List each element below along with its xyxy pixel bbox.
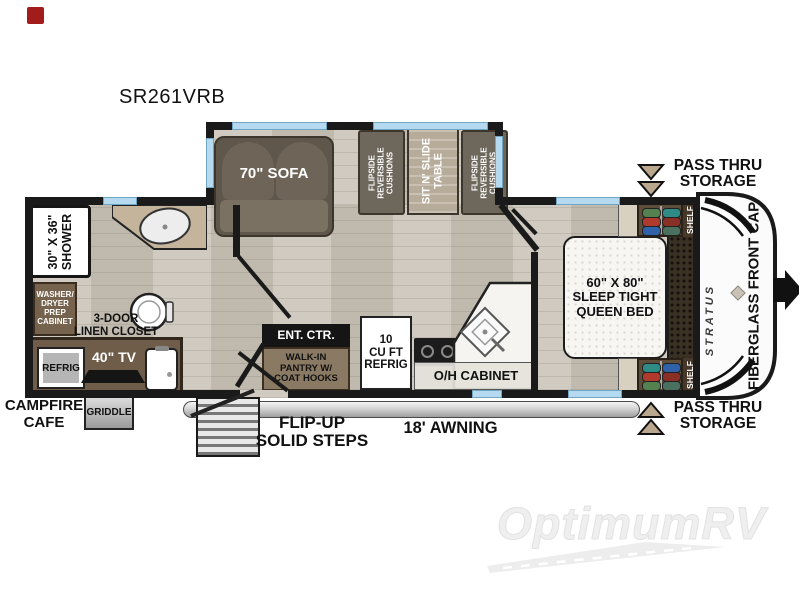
- window: [495, 136, 503, 188]
- down-arrows-icon: [636, 162, 666, 200]
- window: [206, 138, 214, 188]
- wall-bathroom: [233, 205, 240, 257]
- griddle-label: GRIDDLE: [87, 407, 132, 418]
- entertainment-center: ENT. CTR.: [262, 324, 350, 347]
- pass-thru-storage-bottom-label: PASS THRU STORAGE: [664, 400, 772, 433]
- overhead-cabinet: O/H CABINET: [414, 362, 538, 390]
- griddle: GRIDDLE: [84, 394, 134, 430]
- watermark-road-icon: [485, 541, 735, 581]
- shower-label: 30" X 36" SHOWER: [46, 213, 74, 269]
- pass-thru-storage-top-label: PASS THRU STORAGE: [664, 158, 772, 191]
- walk-in-pantry-label: WALK-IN PANTRY W/ COAT HOOKS: [274, 353, 338, 384]
- entertainment-center-label: ENT. CTR.: [277, 329, 334, 342]
- awning-label: 18' AWNING: [393, 419, 508, 437]
- red-marker: [27, 7, 44, 24]
- drain-icon: [167, 372, 172, 377]
- small-refrigerator: REFRIG: [37, 347, 85, 389]
- front-cap-label: FIBERGLASS FRONT CAP: [747, 201, 764, 389]
- wall-rear: [25, 197, 33, 398]
- front-cap-label-wrap: FIBERGLASS FRONT CAP: [742, 193, 768, 398]
- nightstand: [618, 358, 638, 392]
- faucet-icon: [155, 346, 169, 351]
- refrigerator-10cuft: 10 CU FT REFRIG: [360, 316, 412, 390]
- dinette-cushions-right-label: FLIPSIDE REVERSIBLE CUSHIONS: [471, 147, 498, 198]
- tv-label: 40" TV: [87, 350, 141, 365]
- washer-dryer-label: WASHER/ DRYER PREP CABINET: [36, 291, 73, 326]
- dinette-cushions-left-label: FLIPSIDE REVERSIBLE CUSHIONS: [368, 147, 395, 198]
- window: [103, 197, 137, 205]
- window: [568, 390, 622, 398]
- front-cap-brand-label: STRATUS: [704, 284, 716, 356]
- window: [556, 197, 620, 205]
- wardrobe-top: [637, 203, 683, 237]
- small-refrigerator-label: REFRIG: [42, 363, 80, 374]
- shower: 30" X 36" SHOWER: [28, 205, 91, 278]
- steps-label: FLIP-UP SOLID STEPS: [248, 414, 376, 451]
- queen-bed-label: 60" X 80" SLEEP TIGHT QUEEN BED: [573, 276, 658, 319]
- floorplan-page: { "header": { "model": "SR261VRB" }, "li…: [0, 0, 800, 600]
- cafe-sink: [145, 348, 178, 391]
- page-title: SR261VRB: [119, 86, 225, 109]
- overhead-cabinet-label: O/H CABINET: [434, 369, 519, 383]
- campfire-cafe-label: CAMPFIRE CAFE: [0, 398, 88, 431]
- linen-closet-label: 3-DOOR LINEN CLOSET: [70, 313, 162, 338]
- dinette-table: SIT N' SLIDE TABLE: [407, 127, 459, 215]
- wardrobe-bottom: [637, 358, 683, 392]
- sofa-label: 70" SOFA: [216, 166, 332, 183]
- sofa: 70" SOFA: [214, 136, 334, 237]
- up-arrows-icon: [636, 400, 666, 438]
- window: [232, 122, 327, 130]
- window: [472, 390, 502, 398]
- front-cap-brand: STRATUS: [700, 250, 720, 390]
- burner-icon: [421, 345, 434, 358]
- nightstand: [618, 203, 638, 237]
- walk-in-pantry: WALK-IN PANTRY W/ COAT HOOKS: [262, 347, 350, 391]
- bathroom-sink: [112, 205, 207, 251]
- wall-bedroom: [531, 252, 538, 390]
- queen-bed: 60" X 80" SLEEP TIGHT QUEEN BED: [563, 236, 667, 359]
- campfire-cafe-cabinet: REFRIG 40" TV: [25, 337, 183, 393]
- dinette-table-label: SIT N' SLIDE TABLE: [421, 138, 446, 204]
- dinette-cushions-left: FLIPSIDE REVERSIBLE CUSHIONS: [358, 130, 405, 215]
- window: [373, 122, 488, 130]
- tv-shape: [81, 370, 145, 383]
- refrigerator-10cuft-label: 10 CU FT REFRIG: [364, 334, 407, 372]
